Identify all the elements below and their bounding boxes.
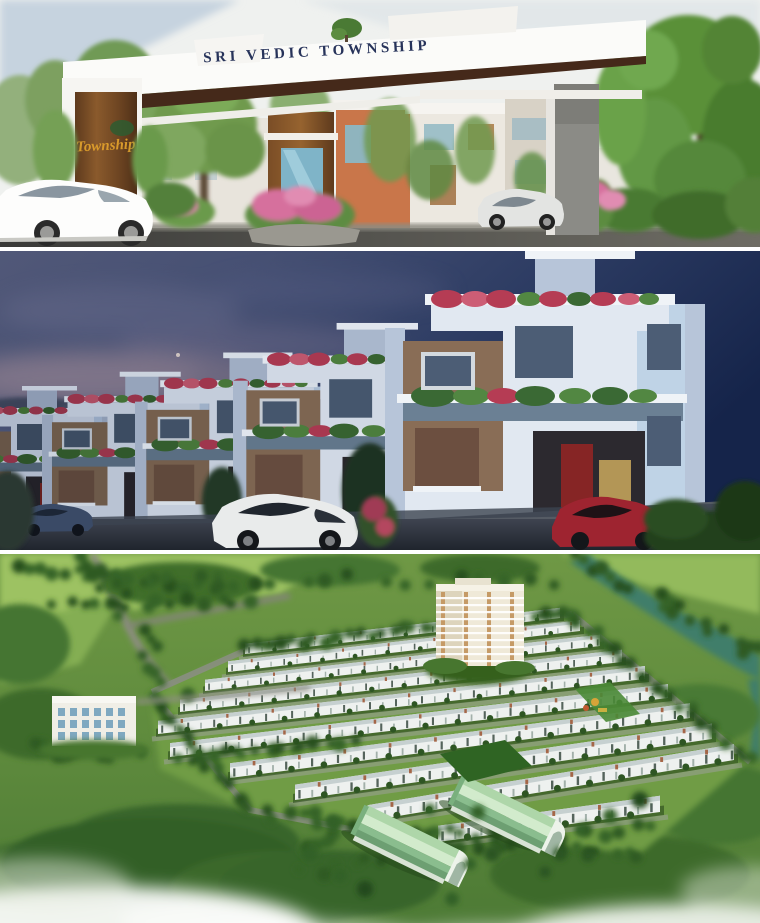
- svg-text:Township: Township: [76, 136, 137, 155]
